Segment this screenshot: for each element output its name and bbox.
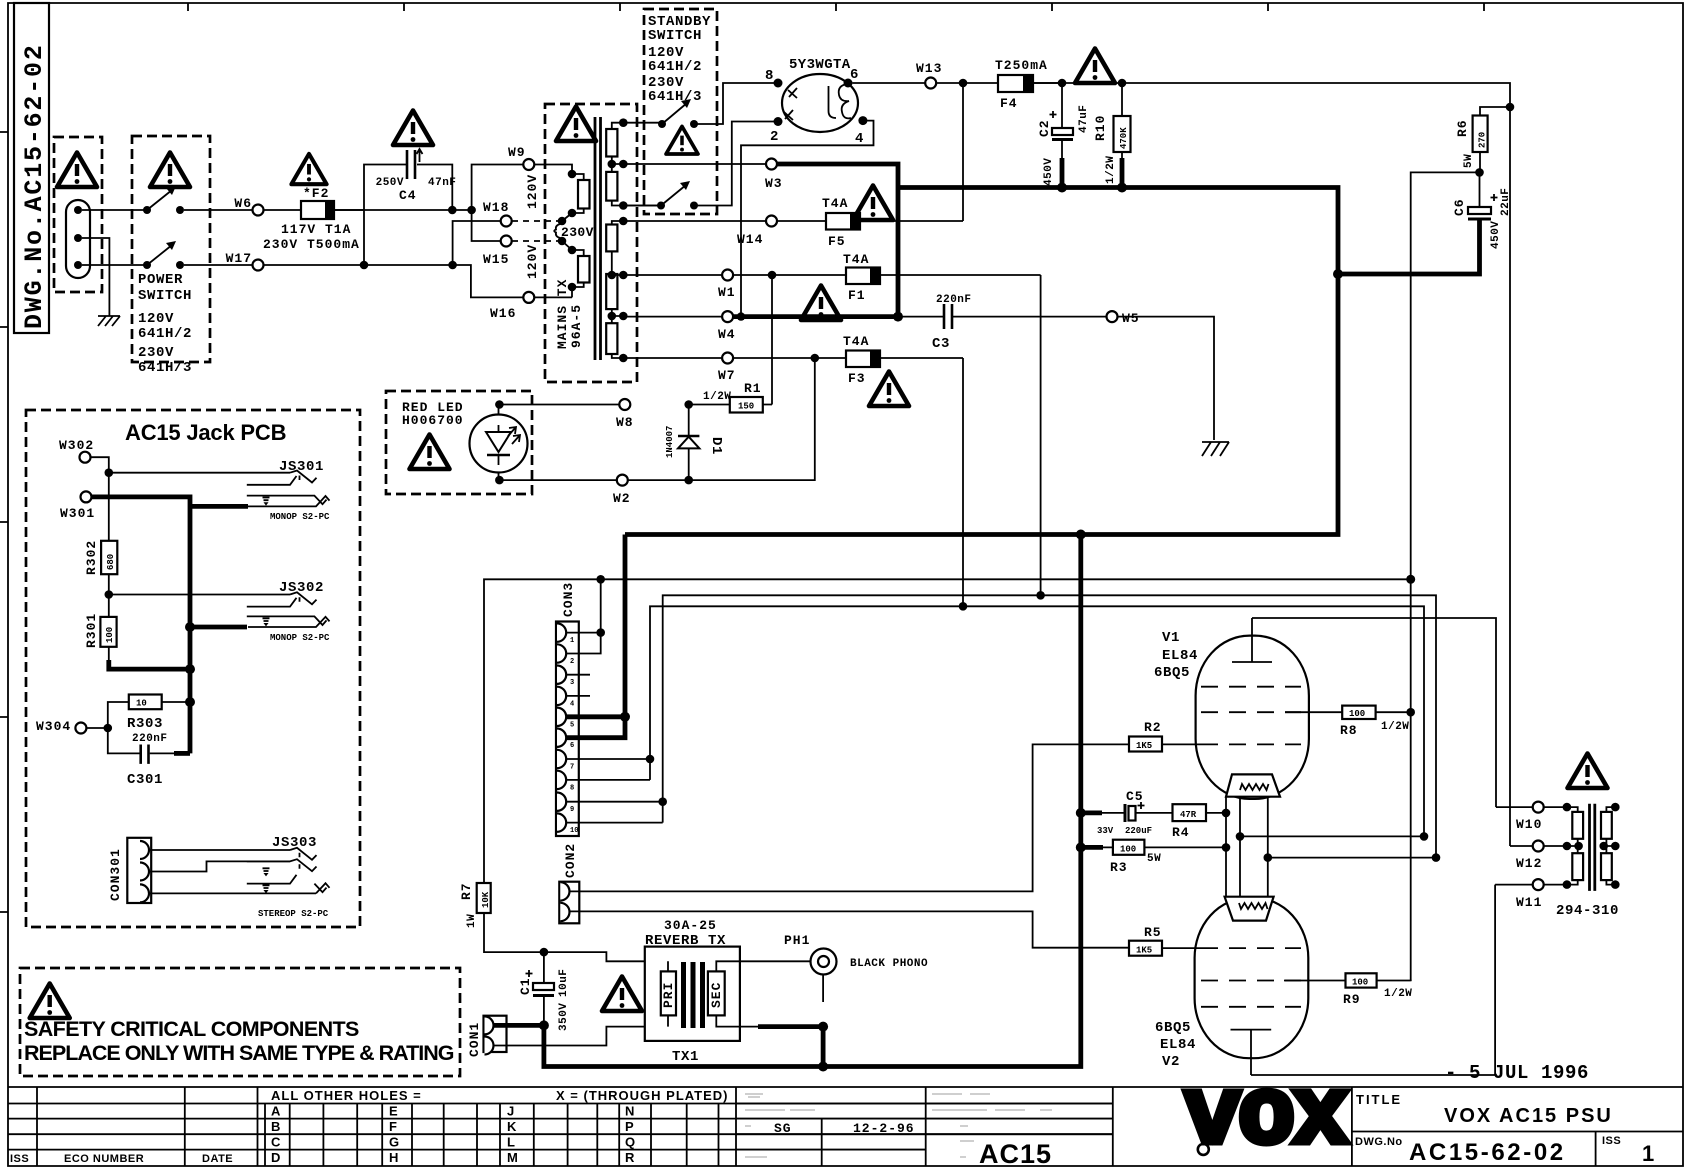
svg-text:W5: W5 xyxy=(1122,311,1140,326)
svg-text:150: 150 xyxy=(738,402,754,412)
svg-text:5W: 5W xyxy=(1147,853,1161,865)
svg-text:W2: W2 xyxy=(613,491,631,506)
svg-text:D1: D1 xyxy=(708,437,724,455)
svg-text:W6: W6 xyxy=(234,196,252,211)
svg-text:1W: 1W xyxy=(466,914,478,928)
svg-text:L: L xyxy=(507,1135,516,1150)
svg-text:R303: R303 xyxy=(127,716,163,732)
svg-text:33V: 33V xyxy=(1097,826,1114,836)
svg-text:1/2W: 1/2W xyxy=(703,391,731,403)
svg-text:117V T1A: 117V T1A xyxy=(281,222,351,237)
svg-text:10uF: 10uF xyxy=(558,969,570,997)
svg-text:47nF: 47nF xyxy=(428,177,456,189)
svg-text:5W: 5W xyxy=(1463,154,1475,168)
svg-text:PRI: PRI xyxy=(661,982,676,1008)
svg-text:641H/2: 641H/2 xyxy=(138,326,192,342)
svg-text:H: H xyxy=(389,1150,399,1165)
svg-text:F4: F4 xyxy=(1000,96,1018,111)
svg-text:22uF: 22uF xyxy=(1500,188,1512,216)
svg-text:680: 680 xyxy=(106,554,116,570)
svg-text:4: 4 xyxy=(570,700,574,708)
svg-text:W9: W9 xyxy=(508,145,526,160)
svg-text:W16: W16 xyxy=(490,306,516,321)
svg-text:ISS: ISS xyxy=(1602,1135,1621,1147)
svg-text:10: 10 xyxy=(136,699,147,709)
svg-text:G: G xyxy=(389,1135,400,1150)
svg-text:REPLACE ONLY WITH SAME TYPE &: REPLACE ONLY WITH SAME TYPE & RATING xyxy=(24,1041,454,1065)
svg-text:2: 2 xyxy=(570,658,574,666)
svg-text:W301: W301 xyxy=(60,506,95,521)
svg-text:1: 1 xyxy=(570,637,574,645)
svg-text:47uF: 47uF xyxy=(1078,105,1090,133)
svg-text:TX1: TX1 xyxy=(672,1049,699,1065)
svg-text:R3: R3 xyxy=(1110,860,1128,875)
svg-text:W17: W17 xyxy=(226,251,252,266)
svg-text:W4: W4 xyxy=(718,327,736,342)
svg-text:230V: 230V xyxy=(138,345,174,361)
svg-text:CON1: CON1 xyxy=(467,1022,482,1057)
svg-text:R10: R10 xyxy=(1093,115,1108,141)
svg-text:N: N xyxy=(625,1104,635,1119)
svg-text:30A-25: 30A-25 xyxy=(664,918,717,933)
svg-text:12-2-96: 12-2-96 xyxy=(853,1121,915,1136)
svg-text:5Y3WGTA: 5Y3WGTA xyxy=(789,57,851,73)
svg-text:T250mA: T250mA xyxy=(995,58,1048,73)
svg-text:X = (THROUGH PLATED): X = (THROUGH PLATED) xyxy=(556,1088,729,1103)
svg-text:R4: R4 xyxy=(1172,825,1190,840)
svg-text:220nF: 220nF xyxy=(132,733,168,745)
svg-text:A: A xyxy=(271,1104,281,1119)
svg-text:REVERB TX: REVERB TX xyxy=(645,933,726,949)
svg-text:C4: C4 xyxy=(399,188,417,203)
svg-text:MONOP S2-PC: MONOP S2-PC xyxy=(270,512,330,522)
svg-text:7: 7 xyxy=(570,764,574,772)
svg-text:vox: vox xyxy=(1184,1063,1347,1170)
svg-text:E: E xyxy=(389,1104,399,1119)
svg-text:EL84: EL84 xyxy=(1160,1037,1196,1053)
svg-text:220nF: 220nF xyxy=(936,294,972,306)
svg-text:3: 3 xyxy=(570,679,574,687)
svg-text:W14: W14 xyxy=(737,232,763,247)
svg-text:470K: 470K xyxy=(1119,127,1129,149)
svg-text:C6: C6 xyxy=(1452,198,1467,216)
svg-text:R7: R7 xyxy=(459,882,474,900)
svg-text:120V: 120V xyxy=(525,244,540,279)
svg-text:ISS: ISS xyxy=(10,1153,29,1165)
svg-text:ALL OTHER HOLES =: ALL OTHER HOLES = xyxy=(271,1088,422,1103)
svg-text:270: 270 xyxy=(1478,132,1488,148)
svg-text:SWITCH: SWITCH xyxy=(648,28,702,44)
svg-text:MAINS TX: MAINS TX xyxy=(555,279,570,349)
svg-text:9: 9 xyxy=(570,806,574,814)
svg-text:W10: W10 xyxy=(1516,817,1542,832)
svg-text:C1: C1 xyxy=(518,977,533,995)
svg-text:R302: R302 xyxy=(84,540,99,575)
svg-text:1: 1 xyxy=(1642,1141,1655,1166)
svg-text:BLACK PHONO: BLACK PHONO xyxy=(850,958,928,970)
svg-text:T4A: T4A xyxy=(843,252,869,267)
svg-text:10: 10 xyxy=(570,827,578,835)
svg-text:47R: 47R xyxy=(1180,810,1197,820)
svg-text:VOX AC15 PSU: VOX AC15 PSU xyxy=(1444,1105,1613,1127)
svg-text:SWITCH: SWITCH xyxy=(138,288,192,304)
svg-text:10K: 10K xyxy=(481,891,491,908)
svg-text:R: R xyxy=(625,1150,635,1165)
svg-text:STEREOP S2-PC: STEREOP S2-PC xyxy=(258,909,329,919)
svg-text:96A-5: 96A-5 xyxy=(569,304,584,348)
svg-text:PH1: PH1 xyxy=(784,933,810,948)
svg-text:100: 100 xyxy=(105,627,115,643)
svg-text:100: 100 xyxy=(1120,845,1136,855)
svg-text:W13: W13 xyxy=(916,61,942,76)
svg-text:8: 8 xyxy=(570,784,574,792)
svg-text:W8: W8 xyxy=(616,415,634,430)
svg-text:1/2W: 1/2W xyxy=(1105,156,1117,184)
svg-text:6: 6 xyxy=(570,742,574,750)
svg-text:P: P xyxy=(625,1119,635,1134)
svg-text:230V: 230V xyxy=(561,225,594,240)
svg-text:W304: W304 xyxy=(36,719,71,734)
svg-text:450V: 450V xyxy=(1490,221,1502,249)
svg-text:294-310: 294-310 xyxy=(1556,903,1619,919)
svg-text:SAFETY CRITICAL COMPONENTS: SAFETY CRITICAL COMPONENTS xyxy=(24,1017,359,1041)
svg-text:R5: R5 xyxy=(1144,925,1162,940)
svg-text:K: K xyxy=(507,1119,517,1134)
svg-text:AC15: AC15 xyxy=(979,1139,1052,1169)
svg-text:W15: W15 xyxy=(483,252,509,267)
svg-text:D: D xyxy=(271,1150,281,1165)
svg-text:120V: 120V xyxy=(138,311,174,327)
svg-text:MONOP S2-PC: MONOP S2-PC xyxy=(270,633,330,643)
svg-text:R6: R6 xyxy=(1455,119,1470,137)
svg-text:2: 2 xyxy=(770,129,779,145)
svg-text:T4A: T4A xyxy=(822,196,848,211)
svg-text:1N4007: 1N4007 xyxy=(665,426,675,458)
svg-text:DWG.No.AC15-62-02: DWG.No.AC15-62-02 xyxy=(20,43,49,329)
svg-text:EL84: EL84 xyxy=(1162,648,1198,664)
svg-text:F1: F1 xyxy=(848,288,866,303)
svg-text:*F2: *F2 xyxy=(303,186,329,201)
svg-text:641H/3: 641H/3 xyxy=(138,360,192,376)
svg-text:1K5: 1K5 xyxy=(1136,946,1152,956)
svg-text:F3: F3 xyxy=(848,371,866,386)
svg-text:W3: W3 xyxy=(765,176,783,191)
svg-text:DWG.No: DWG.No xyxy=(1355,1136,1403,1148)
svg-text:J: J xyxy=(507,1104,515,1119)
svg-text:R8: R8 xyxy=(1340,723,1358,738)
svg-text:6: 6 xyxy=(850,67,859,83)
svg-text:C3: C3 xyxy=(932,336,950,352)
svg-text:H006700: H006700 xyxy=(402,413,464,428)
svg-text:C2: C2 xyxy=(1037,119,1052,137)
svg-text:230V T500mA: 230V T500mA xyxy=(263,237,360,252)
svg-text:POWER: POWER xyxy=(138,272,183,288)
svg-text:CON3: CON3 xyxy=(561,582,576,617)
svg-text:W302: W302 xyxy=(59,438,94,453)
svg-text:C: C xyxy=(271,1135,281,1150)
svg-text:641H/2: 641H/2 xyxy=(648,59,702,75)
svg-text:T4A: T4A xyxy=(843,334,869,349)
svg-text:W7: W7 xyxy=(718,368,736,383)
svg-text:R2: R2 xyxy=(1144,720,1162,735)
svg-text:C5: C5 xyxy=(1126,789,1144,804)
svg-text:M: M xyxy=(507,1150,519,1165)
svg-text:TITLE: TITLE xyxy=(1356,1092,1402,1107)
svg-text:JS301: JS301 xyxy=(279,459,324,475)
svg-text:JS302: JS302 xyxy=(279,580,324,596)
svg-text:6BQ5: 6BQ5 xyxy=(1155,1020,1191,1036)
svg-text:F: F xyxy=(389,1119,398,1134)
svg-text:100: 100 xyxy=(1352,978,1368,988)
svg-text:350V: 350V xyxy=(558,1003,570,1031)
svg-text:AC15-62-02: AC15-62-02 xyxy=(1409,1139,1566,1166)
svg-text:1K5: 1K5 xyxy=(1136,741,1152,751)
svg-text:C301: C301 xyxy=(127,772,163,788)
svg-text:450V: 450V xyxy=(1043,158,1055,186)
svg-text:100: 100 xyxy=(1349,709,1365,719)
svg-text:V1: V1 xyxy=(1162,630,1180,646)
svg-text:CON2: CON2 xyxy=(563,843,578,878)
svg-text:V2: V2 xyxy=(1162,1054,1180,1070)
svg-text:R301: R301 xyxy=(84,613,99,648)
svg-text:B: B xyxy=(271,1119,281,1134)
svg-text:CON301: CON301 xyxy=(108,848,123,901)
svg-text:8: 8 xyxy=(765,68,774,84)
svg-text:5: 5 xyxy=(570,721,574,729)
svg-text:R9: R9 xyxy=(1343,992,1361,1007)
svg-text:Q: Q xyxy=(625,1135,636,1150)
svg-text:W18: W18 xyxy=(483,200,509,215)
svg-text:120V: 120V xyxy=(525,174,540,209)
svg-text:DATE: DATE xyxy=(202,1153,233,1165)
svg-text:W12: W12 xyxy=(1516,856,1542,871)
svg-text:R1: R1 xyxy=(744,381,762,396)
svg-text:1/2W: 1/2W xyxy=(1381,721,1409,733)
svg-text:220uF: 220uF xyxy=(1125,826,1152,836)
svg-text:W1: W1 xyxy=(718,285,736,300)
svg-text:641H/3: 641H/3 xyxy=(648,89,702,105)
svg-text:AC15 Jack PCB: AC15 Jack PCB xyxy=(125,420,286,445)
svg-text:F5: F5 xyxy=(828,234,846,249)
svg-text:ECO NUMBER: ECO NUMBER xyxy=(64,1153,144,1165)
svg-text:SG: SG xyxy=(774,1121,792,1136)
svg-text:W11: W11 xyxy=(1516,895,1542,910)
svg-text:- 5 JUL 1996: - 5 JUL 1996 xyxy=(1445,1062,1589,1084)
svg-text:SEC: SEC xyxy=(709,982,724,1008)
svg-text:1/2W: 1/2W xyxy=(1384,988,1412,1000)
svg-text:6BQ5: 6BQ5 xyxy=(1154,665,1190,681)
